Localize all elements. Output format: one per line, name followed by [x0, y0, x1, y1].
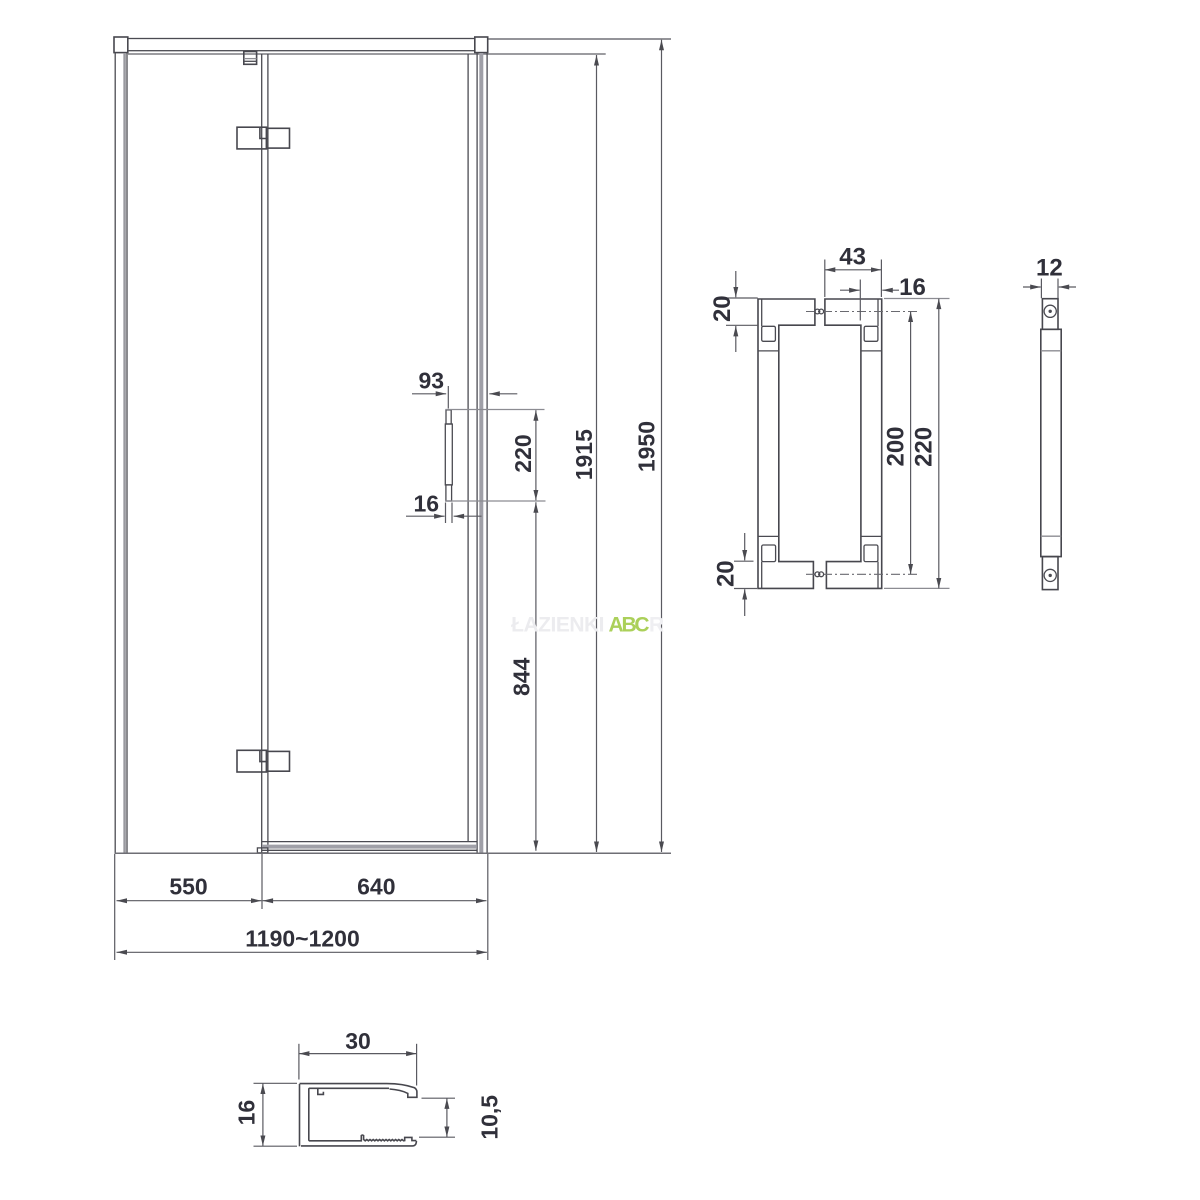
svg-text:1950: 1950 [634, 421, 660, 472]
svg-text:220: 220 [510, 434, 536, 472]
svg-text:640: 640 [357, 874, 395, 900]
svg-text:20: 20 [712, 560, 739, 587]
svg-text:844: 844 [509, 657, 535, 696]
svg-text:16: 16 [899, 274, 926, 301]
svg-text:10,5: 10,5 [476, 1095, 502, 1140]
svg-text:1915: 1915 [571, 429, 597, 480]
svg-text:1190~1200: 1190~1200 [245, 926, 360, 952]
svg-text:R: R [649, 614, 664, 637]
svg-text:43: 43 [839, 244, 866, 271]
svg-text:20: 20 [709, 295, 736, 322]
svg-text:200: 200 [883, 426, 910, 466]
svg-text:220: 220 [910, 427, 937, 467]
svg-text:16: 16 [233, 1100, 259, 1126]
svg-text:93: 93 [419, 367, 445, 393]
svg-text:30: 30 [345, 1028, 371, 1054]
svg-text:12: 12 [1036, 254, 1063, 281]
svg-text:ŁAZIENKI: ŁAZIENKI [511, 614, 604, 637]
svg-text:ABC: ABC [609, 614, 650, 637]
svg-text:16: 16 [414, 491, 440, 517]
svg-text:550: 550 [169, 874, 207, 900]
